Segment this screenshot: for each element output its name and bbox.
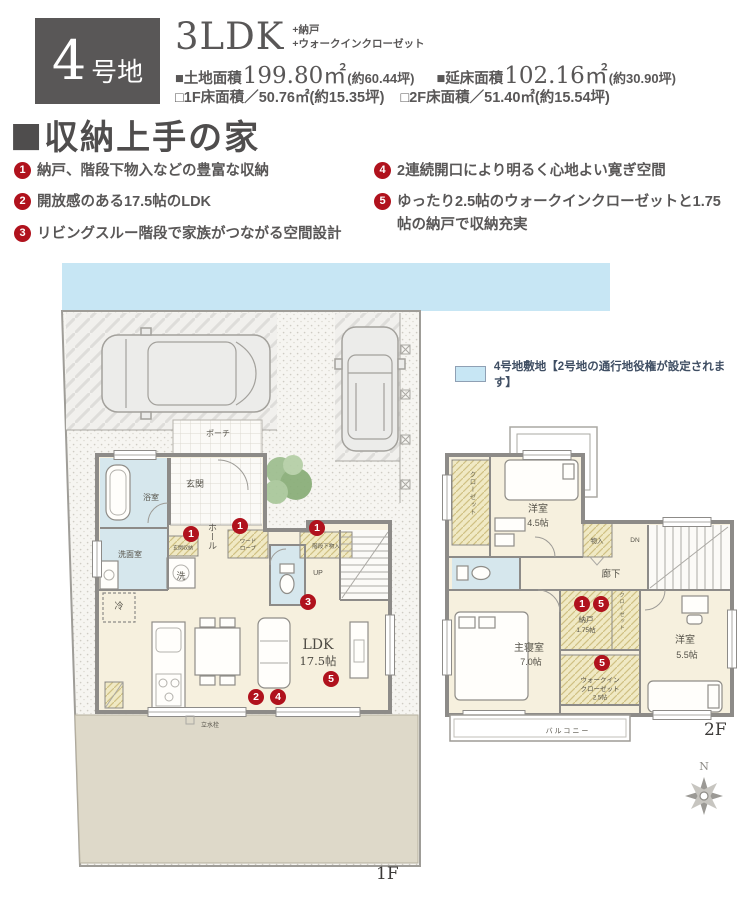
total-floor-area-note: (約30.90坪) bbox=[609, 68, 676, 87]
feature-number-3: 3 bbox=[14, 225, 31, 242]
wardrobe-label-1: ワード bbox=[240, 538, 257, 545]
floor1-area: □1F床面積／ 50.76㎡ (約15.35坪) bbox=[175, 86, 384, 107]
feature-column-right: 4 2連続開口により明るく心地よい寛ぎ空間 5 ゆったり2.5帖のウォークインク… bbox=[374, 160, 734, 245]
faucet-label: 立水栓 bbox=[201, 721, 219, 729]
feature-number-1: 1 bbox=[14, 162, 31, 179]
total-floor-area-label: ■延床面積 bbox=[436, 67, 503, 88]
dining-table bbox=[195, 618, 240, 685]
floor1-area-label: □1F床面積／ bbox=[175, 86, 259, 107]
floor2-area-value: 51.40㎡ bbox=[484, 86, 535, 107]
plan-badge-3: 3 bbox=[300, 594, 316, 610]
bed-room55 bbox=[648, 681, 722, 712]
section-headline: ■ 収納上手の家 bbox=[10, 110, 260, 159]
plan-badge-1-nando: 1 bbox=[574, 596, 590, 612]
feature-text-4: 2連続開口により明るく心地よい寛ぎ空間 bbox=[397, 160, 666, 182]
room45-size-label: 4.5帖 bbox=[527, 517, 549, 528]
floor-label-2f: 2F bbox=[704, 720, 727, 740]
feature-text-3: リビングスルー階段で家族がつながる空間設計 bbox=[37, 223, 342, 245]
site-legend: 4号地敷地【2号地の通行地役権が設定されます】 bbox=[455, 358, 739, 390]
feature-column-left: 1 納戸、階段下物入などの豊富な収納 2 開放感のある17.5帖のLDK 3 リ… bbox=[14, 160, 364, 245]
balcony bbox=[450, 715, 630, 741]
dn-label: DN bbox=[630, 537, 640, 544]
feature-number-2: 2 bbox=[14, 193, 31, 210]
total-floor-area: ■延床面積 102.16㎡ (約30.90坪) bbox=[436, 56, 675, 90]
floor2-area: □2F床面積／ 51.40㎡ (約15.54坪) bbox=[400, 86, 609, 107]
feature-number-4: 4 bbox=[374, 162, 391, 179]
plan-badge-2: 2 bbox=[248, 689, 264, 705]
garden-yard bbox=[75, 715, 418, 863]
wic-label-1: ウォークイン bbox=[581, 676, 620, 684]
vanity-sink bbox=[100, 561, 118, 589]
feature-item-3: 3 リビングスルー階段で家族がつながる空間設計 bbox=[14, 223, 364, 245]
room45-label: 洋室 bbox=[528, 502, 548, 515]
lot-number: 4 bbox=[52, 34, 86, 88]
land-area-value: 199.80㎡ bbox=[243, 56, 346, 90]
feature-item-4: 4 2連続開口により明るく心地よい寛ぎ空間 bbox=[374, 160, 734, 182]
plan-badge-5-wic: 5 bbox=[594, 655, 610, 671]
ldk-label: LDK bbox=[303, 637, 335, 653]
shoe-storage-label: 玄関収納 bbox=[173, 545, 193, 552]
bed-master bbox=[455, 612, 528, 700]
master-label: 主寝室 bbox=[514, 641, 544, 654]
kitchen-counter bbox=[152, 622, 185, 710]
wic-size-label: 2.5帖 bbox=[593, 694, 607, 702]
feature-text-2: 開放感のある17.5帖のLDK bbox=[37, 191, 211, 213]
compass-rose-icon bbox=[682, 774, 726, 818]
plan-badge-4: 4 bbox=[270, 689, 286, 705]
plan-extras: +納戸 +ウォークインクローゼット bbox=[292, 18, 424, 51]
entrance-hall bbox=[170, 458, 262, 525]
plan-extra-2: +ウォークインクローゼット bbox=[292, 37, 424, 51]
bed-room45 bbox=[505, 460, 578, 500]
up-label: UP bbox=[313, 570, 323, 577]
plan-badge-1-shoe: 1 bbox=[183, 526, 199, 542]
master-size-label: 7.0帖 bbox=[520, 656, 542, 667]
area-row-1: ■土地面積 199.80㎡ (約60.44坪) ■延床面積 102.16㎡ (約… bbox=[175, 56, 676, 90]
feature-item-5: 5 ゆったり2.5帖のウォークインクローゼットと1.75帖の納戸で収納充実 bbox=[374, 191, 734, 236]
floor-plan-2f: 洋室 4.5帖 物入 DN 廊下 主寝室 7.0帖 納戸 1.75帖 ウォークイ… bbox=[435, 415, 737, 755]
porch-label: ポーチ bbox=[206, 429, 230, 438]
legend-text: 4号地敷地【2号地の通行地役権が設定されます】 bbox=[494, 358, 739, 390]
hall-label: ホール bbox=[206, 523, 219, 550]
plan-badge-1-understairs: 1 bbox=[309, 520, 325, 536]
hall-storage-label: 物入 bbox=[591, 536, 605, 545]
car-suv bbox=[335, 327, 405, 451]
feature-number-5: 5 bbox=[374, 193, 391, 210]
land-area-label: ■土地面積 bbox=[175, 67, 242, 88]
wic-label-2: クローゼット bbox=[581, 684, 620, 693]
feature-item-1: 1 納戸、階段下物入などの豊富な収納 bbox=[14, 160, 364, 182]
closet-left-label: クローゼット bbox=[466, 471, 476, 516]
land-area: ■土地面積 199.80㎡ (約60.44坪) bbox=[175, 56, 414, 90]
wardrobe-label-2: ローブ bbox=[240, 544, 257, 552]
lot-badge: 4 号地 bbox=[35, 18, 160, 104]
porch bbox=[173, 420, 262, 458]
lot-suffix: 号地 bbox=[91, 34, 143, 89]
nando-size-label: 1.75帖 bbox=[576, 625, 596, 634]
floor2-area-label: □2F床面積／ bbox=[400, 86, 484, 107]
nando-label: 納戸 bbox=[579, 614, 594, 624]
fridge-label: 冷 bbox=[114, 600, 123, 611]
corridor-label: 廊下 bbox=[601, 568, 620, 580]
plan-type: 3LDK bbox=[175, 18, 284, 57]
floor1-area-value: 50.76㎡ bbox=[259, 86, 310, 107]
plan-badge-5-nando: 5 bbox=[593, 596, 609, 612]
washer-label: 洗 bbox=[176, 570, 185, 581]
floor2-area-note: (約15.54坪) bbox=[535, 86, 610, 107]
room55-size-label: 5.5帖 bbox=[676, 649, 698, 660]
feature-list: 1 納戸、階段下物入などの豊富な収納 2 開放感のある17.5帖のLDK 3 リ… bbox=[14, 160, 734, 245]
headline-square-icon: ■ bbox=[10, 115, 44, 155]
flyer-page: 4 号地 3LDK +納戸 +ウォークインクローゼット ■土地面積 199.80… bbox=[0, 0, 739, 900]
legend-swatch bbox=[455, 366, 486, 382]
toilet-fixture-1f bbox=[280, 564, 294, 594]
floor-plan-1f: ポーチ 浴室 洗面室 洗 玄関 玄関収納 ワード ローブ 階段下物入 UP 冷 … bbox=[30, 303, 430, 893]
land-area-note: (約60.44坪) bbox=[347, 68, 414, 87]
entrance-label: 玄関 bbox=[186, 478, 204, 489]
plan-badge-1-wardrobe: 1 bbox=[232, 518, 248, 534]
washroom-label: 洗面室 bbox=[118, 549, 142, 559]
total-floor-area-value: 102.16㎡ bbox=[504, 56, 607, 90]
floor-label-1f: 1F bbox=[376, 864, 399, 884]
car-sedan bbox=[102, 328, 270, 419]
bath-label: 浴室 bbox=[143, 492, 159, 502]
tv-board bbox=[350, 622, 368, 678]
plan-type-line: 3LDK +納戸 +ウォークインクローゼット bbox=[175, 18, 425, 57]
feature-text-5: ゆったり2.5帖のウォークインクローゼットと1.75帖の納戸で収納充実 bbox=[397, 191, 734, 236]
closet-mid-label: クローゼット bbox=[617, 592, 625, 631]
feature-text-1: 納戸、階段下物入などの豊富な収納 bbox=[37, 160, 269, 182]
ldk-size-label: 17.5帖 bbox=[299, 654, 336, 668]
plan-extra-1: +納戸 bbox=[292, 23, 424, 37]
compass-north-label: N bbox=[681, 760, 727, 773]
floor1-area-note: (約15.35坪) bbox=[309, 86, 384, 107]
sofa bbox=[258, 618, 290, 688]
plan-badge-5-ldk: 5 bbox=[323, 671, 339, 687]
headline-text: 収納上手の家 bbox=[44, 110, 260, 159]
compass: N bbox=[681, 760, 727, 823]
floor-storage bbox=[105, 682, 123, 708]
under-stairs-label: 階段下物入 bbox=[312, 542, 340, 550]
room55-label: 洋室 bbox=[675, 633, 695, 646]
balcony-label: バルコニー bbox=[546, 727, 591, 735]
feature-item-2: 2 開放感のある17.5帖のLDK bbox=[14, 191, 364, 213]
bathtub bbox=[106, 465, 130, 520]
area-row-2: □1F床面積／ 50.76㎡ (約15.35坪) □2F床面積／ 51.40㎡ … bbox=[175, 86, 610, 107]
